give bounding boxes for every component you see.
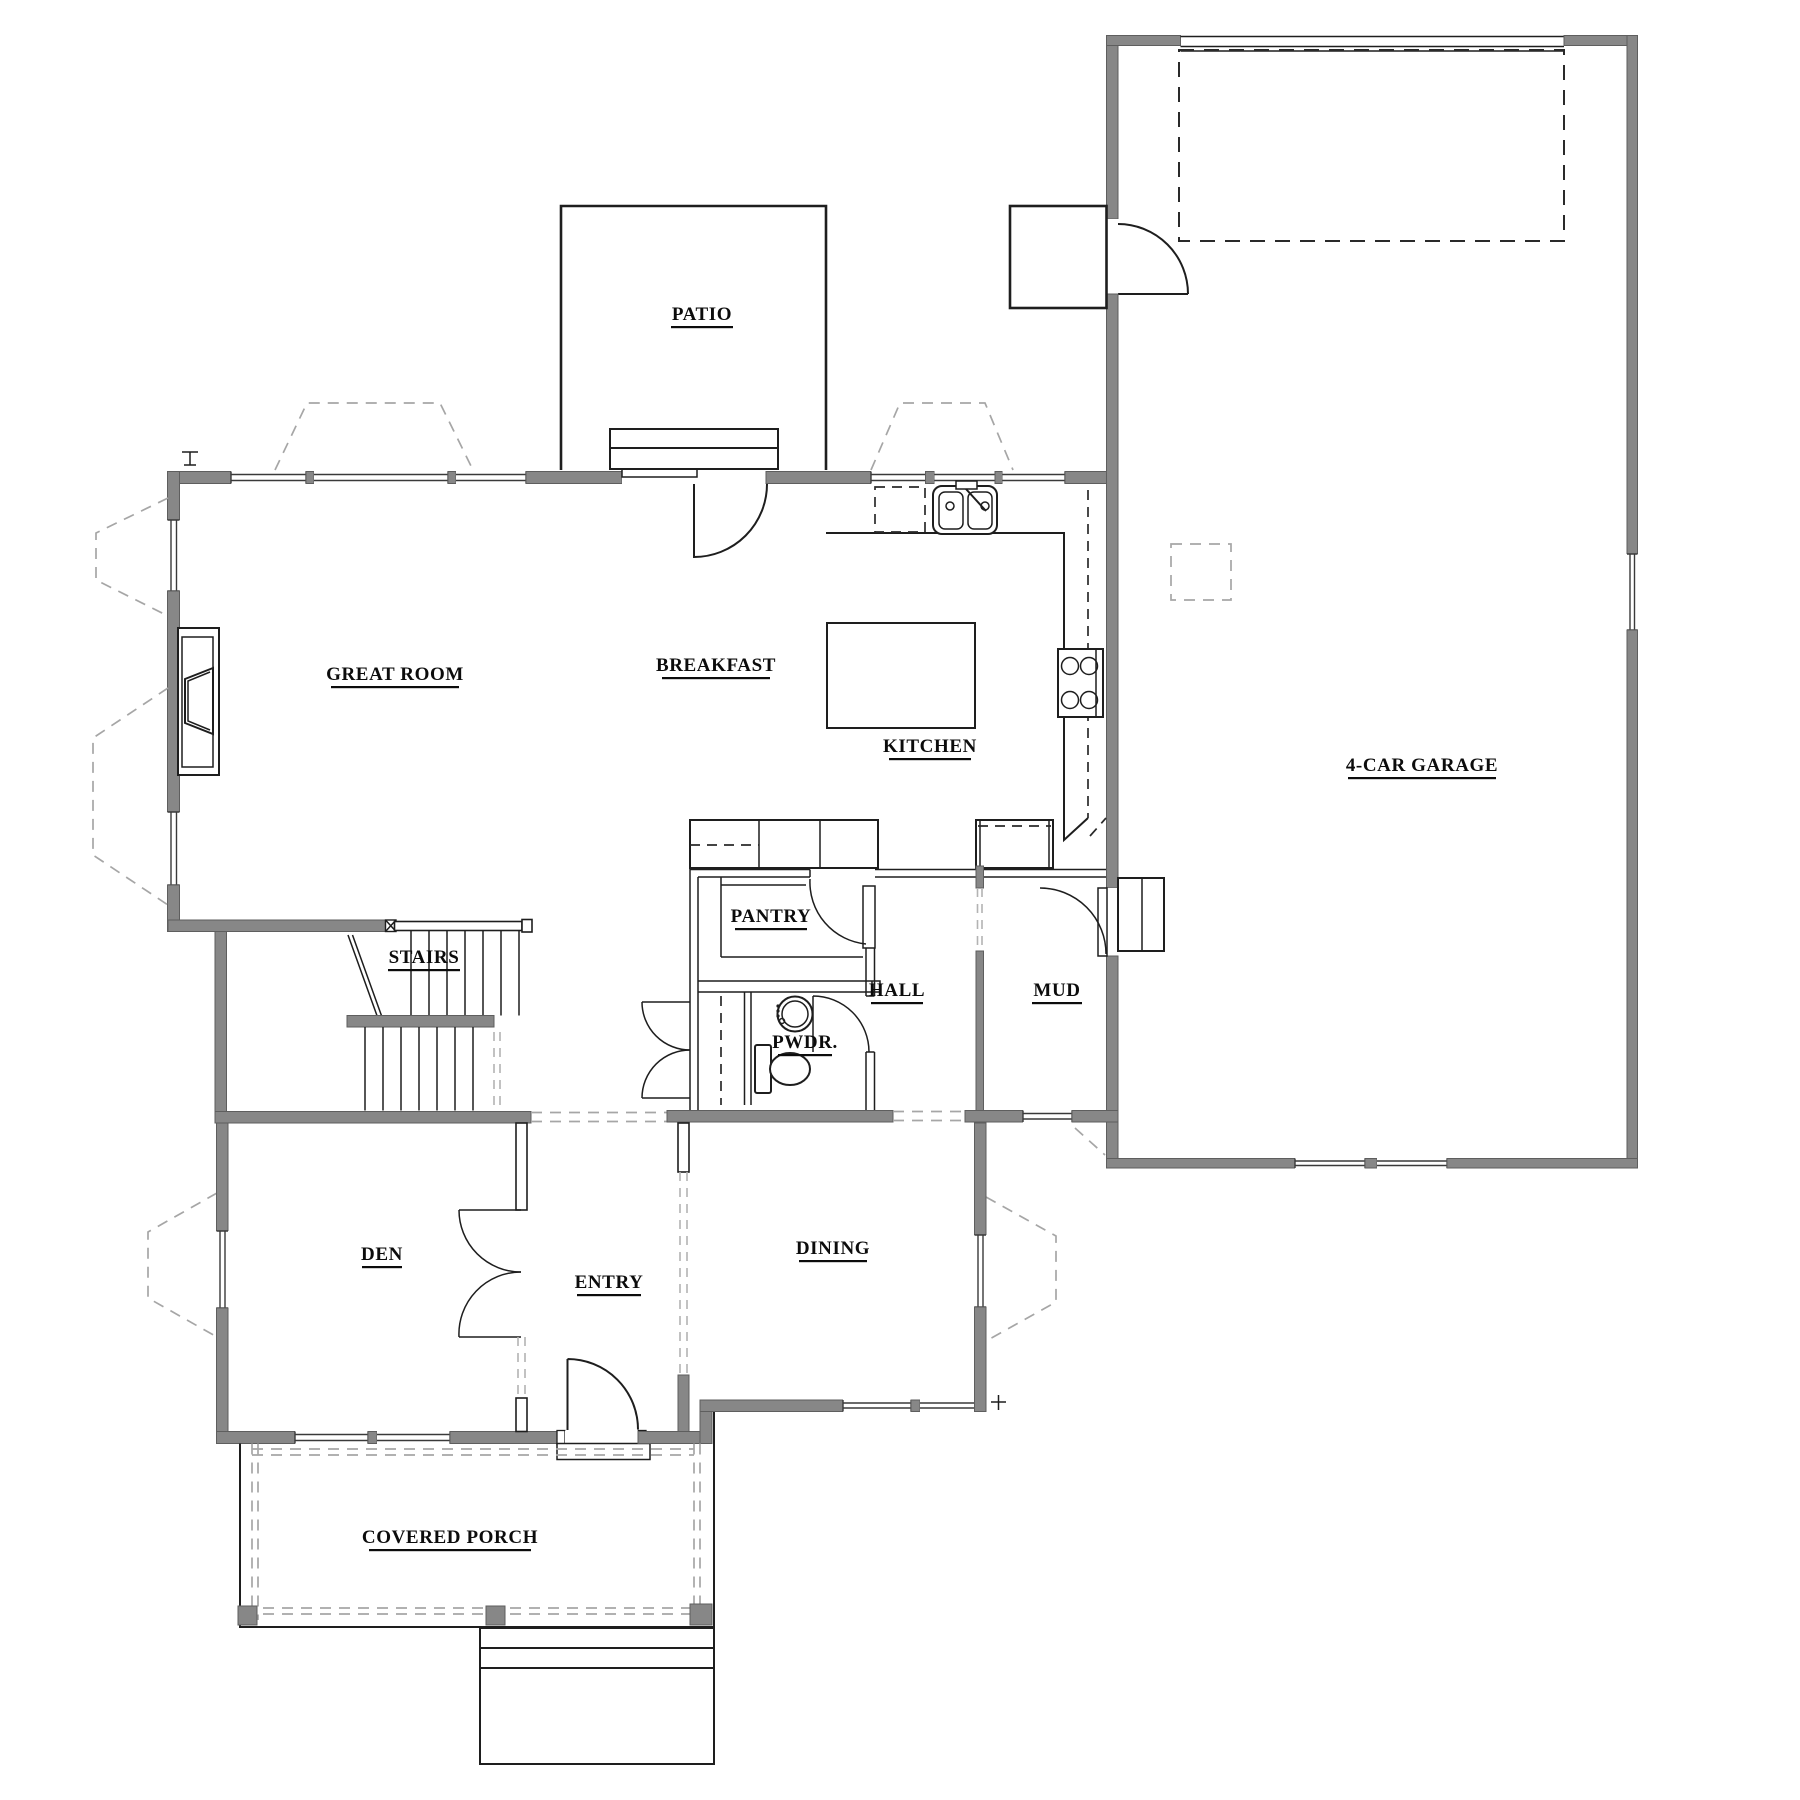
svg-text:DINING: DINING — [796, 1238, 870, 1259]
svg-text:PWDR.: PWDR. — [772, 1032, 838, 1053]
svg-text:GREAT ROOM: GREAT ROOM — [326, 664, 464, 685]
svg-text:PATIO: PATIO — [672, 304, 732, 325]
svg-text:STAIRS: STAIRS — [389, 947, 460, 968]
svg-text:HALL: HALL — [869, 980, 925, 1001]
svg-text:DEN: DEN — [361, 1244, 403, 1265]
svg-text:KITCHEN: KITCHEN — [883, 736, 977, 757]
svg-text:PANTRY: PANTRY — [731, 906, 812, 927]
svg-text:ENTRY: ENTRY — [575, 1272, 644, 1293]
svg-text:BREAKFAST: BREAKFAST — [656, 655, 776, 676]
svg-text:MUD: MUD — [1033, 980, 1080, 1001]
svg-text:COVERED PORCH: COVERED PORCH — [362, 1527, 538, 1548]
svg-text:4-CAR GARAGE: 4-CAR GARAGE — [1346, 755, 1498, 776]
